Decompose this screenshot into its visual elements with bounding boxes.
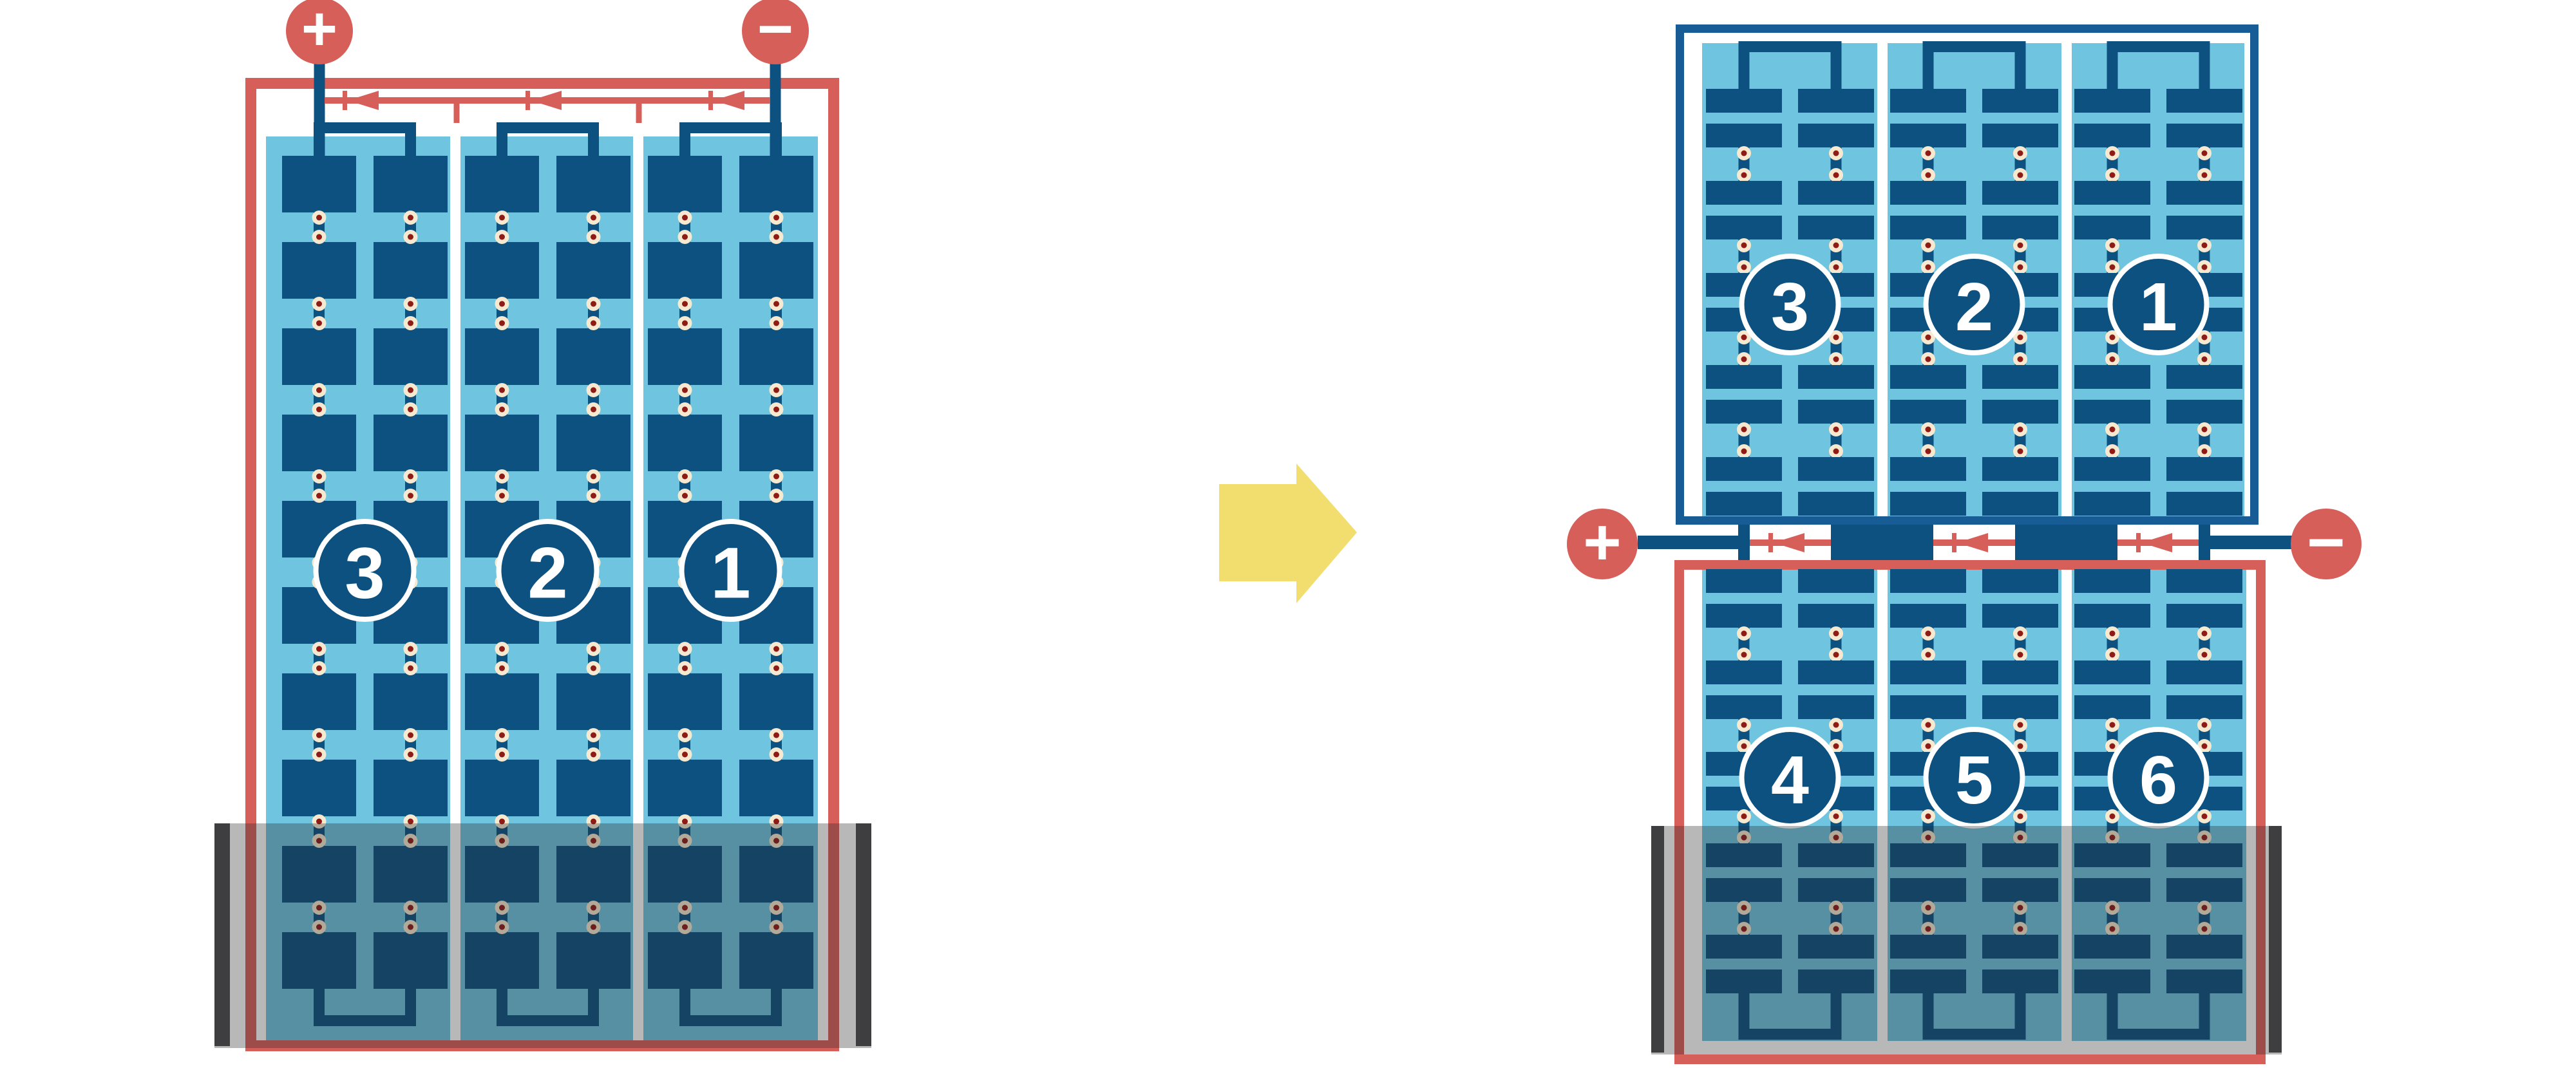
left-solder-dot-core [408,215,413,221]
left-solder-dot-core [591,234,596,240]
left-solder-dot-core [316,234,322,240]
right-bottom-panel-solder-dot-core [2018,814,2023,820]
left-solder-dot-core [408,666,413,671]
right-top-panel-solder-dot-core [1833,335,1839,341]
right-bottom-panel-half-cell [1982,569,2058,593]
right-top-panel-half-cell [1890,457,1966,481]
left-solder-dot-core [591,301,596,307]
left-minus-terminal-label: − [757,0,793,64]
right-bottom-panel-half-cell [2074,695,2150,719]
right-top-panel-solder-dot-core [1833,243,1839,248]
left-solder-dot-core [773,321,779,326]
left-bypass-diode-bar [526,91,530,110]
left-solder-dot-core [499,234,505,240]
left-solder-dot-core [408,733,413,738]
right-top-panel-top-staple-bar [1739,41,1842,52]
right-bottom-panel-solder-dot-core [1741,814,1747,820]
right-top-panel-substring-label: 2 [1955,269,1993,345]
right-bottom-panel-substring-label: 6 [2139,742,2177,818]
right-top-panel-solder-dot-core [2110,243,2116,248]
right-bottom-panel-half-cell [1890,660,1966,684]
left-bypass-diode-triangle [714,91,744,110]
right-top-panel-half-cell [1706,181,1782,205]
left-solder-dot-core [591,666,596,671]
right-top-panel-solder-dot-core [1741,265,1747,270]
right-bottom-panel-half-cell [2074,604,2150,628]
left-solder-dot-core [408,321,413,326]
right-bottom-panel-half-cell [1890,695,1966,719]
right-top-panel-half-cell [1982,492,2058,516]
left-cell [282,760,356,816]
left-cell [739,673,813,730]
left-solder-dot-core [682,752,688,758]
right-top-panel-solder-dot-core [1833,151,1839,156]
right-top-panel-solder-dot-core [1926,243,1931,248]
right-bottom-panel-half-cell [1798,569,1874,593]
right-bypass-diode-bar [1768,533,1773,552]
right-top-panel-top-staple-leg [1923,41,1934,89]
right-bottom-panel-half-cell [1798,604,1874,628]
right-bottom-panel-half-cell [1706,660,1782,684]
right-top-panel-solder-dot-core [2110,427,2116,433]
right-top-panel-half-cell [1798,457,1874,481]
left-solder-dot-core [499,407,505,413]
screenshot-root: 321+−321456+− [0,0,2576,1068]
right-bottom-panel-solder-dot-core [2202,631,2208,637]
right-bottom-panel-solder-dot-core [2018,722,2023,728]
right-top-panel-half-cell [2166,457,2242,481]
left-solder-dot-core [499,215,505,221]
left-shade-post [856,823,871,1046]
right-top-panel-substring-separator [2061,43,2072,516]
right-top-panel-solder-dot-core [2202,173,2208,178]
left-cell [739,415,813,471]
left-cell [648,760,722,816]
left-solder-dot-core [408,301,413,307]
right-top-panel-half-cell [2074,216,2150,239]
left-solder-dot-core [316,407,322,413]
left-cell [465,673,539,730]
left-solder-dot-core [316,321,322,326]
left-solder-dot-core [316,215,322,221]
left-cell [648,328,722,385]
right-bypass-diode-triangle [1957,533,1988,552]
right-top-panel-half-cell [1982,457,2058,481]
left-solder-dot-core [499,752,505,758]
right-bottom-panel-solder-dot-core [2110,744,2116,749]
left-cell [282,156,356,212]
right-top-panel-solder-dot-core [2110,449,2116,454]
right-top-panel-half-cell [1706,216,1782,239]
right-top-panel-half-cell [1890,365,1966,389]
right-top-panel-solder-dot-core [2018,449,2023,454]
right-top-panel-half-cell [1798,216,1874,239]
left-cell [282,415,356,471]
right-bottom-panel-half-cell [1706,695,1782,719]
right-top-panel-solder-dot-core [2018,265,2023,270]
left-cell [556,673,630,730]
left-cell [465,242,539,299]
right-bottom-panel-solder-dot-core [2018,631,2023,637]
right-bottom-panel-solder-dot-core [1833,652,1839,658]
left-diode-bus-tap [454,104,460,123]
right-bottom-panel-solder-dot-core [1833,722,1839,728]
left-cell [739,760,813,816]
right-junction-tab [2199,521,2210,561]
right-top-panel-half-cell [2074,365,2150,389]
right-bottom-panel-solder-dot-core [1833,814,1839,820]
left-bypass-diode-triangle [348,91,379,110]
right-bottom-panel-half-cell [2166,695,2242,719]
left-plus-terminal-label: + [301,0,337,64]
left-solder-dot-core [682,234,688,240]
left-solder-dot-core [591,474,596,480]
right-terminal-bus [2210,536,2292,549]
left-solder-dot-core [499,388,505,393]
right-bottom-panel-substring-label: 5 [1955,742,1993,818]
left-solder-dot-core [682,733,688,738]
right-plus-terminal-label: + [1583,505,1621,579]
right-top-panel-half-cell [1798,89,1874,113]
right-top-panel-half-cell [1890,492,1966,516]
right-top-panel-half-cell [2166,365,2242,389]
right-bottom-panel-half-cell [1890,604,1966,628]
right-bottom-panel-solder-dot-core [1833,631,1839,637]
right-terminal-bus [1638,536,1739,549]
left-solder-dot-core [773,666,779,671]
right-bottom-panel-half-cell [1798,660,1874,684]
left-top-staple-leg [497,122,507,156]
right-shade-post [2269,826,2282,1053]
left-solder-dot-core [408,646,413,652]
left-solder-dot-core [682,474,688,480]
left-solder-dot-core [591,493,596,499]
right-top-panel-top-staple-leg [2015,41,2026,89]
right-top-panel-solder-dot-core [1926,357,1931,362]
left-cell [648,673,722,730]
right-top-panel-solder-dot-core [1833,357,1839,362]
right-bottom-panel-solder-dot-core [2110,631,2116,637]
left-substring-label: 3 [345,533,384,614]
left-solder-dot-core [591,752,596,758]
right-top-panel-solder-dot-core [1741,357,1747,362]
right-top-panel-solder-dot-core [2202,243,2208,248]
right-top-panel-half-cell [1706,457,1782,481]
left-plus-stem [314,61,325,156]
left-solder-dot-core [499,733,505,738]
right-top-panel-solder-dot-core [1926,151,1931,156]
left-cell [556,156,630,212]
right-junction-tab [1831,521,1933,561]
right-top-panel-half-cell [1706,492,1782,516]
left-solder-dot-core [591,321,596,326]
right-top-panel-solder-dot-core [2018,427,2023,433]
right-bypass-diode-triangle [2141,533,2172,552]
left-solder-dot-core [773,493,779,499]
left-solder-dot-core [316,646,322,652]
right-top-panel-half-cell [2166,89,2242,113]
left-solder-dot-core [682,215,688,221]
right-bottom-panel-solder-dot-core [1926,814,1931,820]
right-top-panel-half-cell [1982,365,2058,389]
right-top-panel-solder-dot-core [1833,427,1839,433]
left-cell [739,242,813,299]
right-shade-overlay [1651,826,2282,1054]
left-cell [465,760,539,816]
right-bottom-panel-solder-dot-core [2202,744,2208,749]
left-top-staple-bar [314,122,416,133]
right-top-panel-top-staple-leg [2107,41,2118,89]
left-solder-dot-core [682,493,688,499]
left-solder-dot-core [682,388,688,393]
right-top-panel-half-cell [2166,400,2242,424]
right-top-panel-top-staple-bar [2107,41,2210,52]
left-solder-dot-core [316,301,322,307]
right-bottom-panel-half-cell [1982,604,2058,628]
right-top-panel-half-cell [1890,216,1966,239]
left-solder-dot-core [773,474,779,480]
left-solder-dot-core [773,215,779,221]
right-top-panel-solder-dot-core [2018,151,2023,156]
right-top-panel-half-cell [2166,124,2242,147]
left-diode-bus-tap [636,104,642,123]
right-top-panel-solder-dot-core [2018,173,2023,178]
left-solder-dot-core [591,407,596,413]
right-top-panel-half-cell [2074,89,2150,113]
left-solder-dot-core [499,646,505,652]
right-top-panel-solder-dot-core [1926,427,1931,433]
right-bottom-panel-solder-dot-core [2018,744,2023,749]
right-top-panel-half-cell [1890,181,1966,205]
right-top-panel-substring-label: 3 [1771,269,1809,345]
right-top-panel-half-cell [1706,365,1782,389]
right-top-panel-solder-dot-core [1926,173,1931,178]
left-cell [648,242,722,299]
left-bypass-diode-bar [343,91,347,110]
right-top-panel-solder-dot-core [2110,173,2116,178]
right-top-panel-solder-dot-core [1741,243,1747,248]
left-cell [556,242,630,299]
right-top-panel-solder-dot-core [2110,151,2116,156]
left-top-staple-bar [497,122,599,133]
right-top-panel-half-cell [2074,457,2150,481]
left-solder-dot-core [682,407,688,413]
right-top-panel-solder-dot-core [2110,335,2116,341]
left-substring-label: 2 [527,533,567,614]
right-bottom-panel-solder-dot-core [2110,652,2116,658]
left-solder-dot-core [591,646,596,652]
right-bottom-panel-half-cell [2074,660,2150,684]
right-bottom-panel-solder-dot-core [1833,744,1839,749]
right-top-panel-solder-dot-core [1833,265,1839,270]
left-top-staple-bar [679,122,782,133]
right-bypass-diode-bar [1952,533,1956,552]
right-top-panel-solder-dot-core [1741,449,1747,454]
left-cell [465,328,539,385]
left-shade-post [214,823,230,1046]
right-top-panel-solder-dot-core [1741,173,1747,178]
right-bypass-diode-bar [2136,533,2141,552]
left-cell [374,415,448,471]
right-top-panel-half-cell [1890,124,1966,147]
left-cell [374,328,448,385]
left-solder-dot-core [773,733,779,738]
right-top-panel-solder-dot-core [2018,243,2023,248]
left-cell [374,156,448,212]
solar-module-comparison-diagram: 321+−321456+− [0,0,2576,1068]
left-cell [465,415,539,471]
left-solder-dot-core [682,301,688,307]
right-top-panel-half-cell [1798,492,1874,516]
right-shade-post [1651,826,1664,1053]
right-bottom-panel-half-cell [2074,569,2150,593]
right-top-panel-half-cell [1798,400,1874,424]
right-bottom-panel-solder-dot-core [2202,722,2208,728]
left-cell [374,760,448,816]
right-top-panel-half-cell [1890,400,1966,424]
left-solder-dot-core [591,215,596,221]
right-top-panel-half-cell [2074,124,2150,147]
left-bypass-diode-triangle [531,91,562,110]
right-bottom-panel-solder-dot-core [1926,652,1931,658]
right-top-panel-half-cell [2166,492,2242,516]
right-bypass-diode-triangle [1774,533,1804,552]
right-junction-tab [2015,521,2117,561]
left-cell [739,156,813,212]
right-top-panel-half-cell [1706,89,1782,113]
right-bottom-panel-half-cell [1890,569,1966,593]
left-solder-dot-core [316,474,322,480]
right-top-panel-half-cell [1706,400,1782,424]
left-cell [282,242,356,299]
left-top-staple-leg [588,122,599,156]
transition-arrow-icon [1219,464,1357,603]
left-solder-dot-core [773,407,779,413]
left-solder-dot-core [316,752,322,758]
right-top-panel-substring-separator [1877,43,1888,516]
left-solder-dot-core [591,733,596,738]
left-cell [374,242,448,299]
left-solder-dot-core [682,321,688,326]
right-top-panel-solder-dot-core [2018,357,2023,362]
right-top-panel-solder-dot-core [2202,427,2208,433]
right-bottom-panel-solder-dot-core [2018,652,2023,658]
right-top-panel-half-cell [1890,89,1966,113]
right-top-panel-half-cell [2166,181,2242,205]
right-top-panel-solder-dot-core [1926,335,1931,341]
right-top-panel-half-cell [2074,400,2150,424]
left-solder-dot-core [408,388,413,393]
right-bottom-panel-substring-label: 4 [1771,742,1809,818]
right-bottom-panel-solder-dot-core [1926,631,1931,637]
right-top-panel-top-staple-bar [1923,41,2026,52]
right-bottom-panel-solder-dot-core [1926,722,1931,728]
right-bottom-panel-half-cell [1706,569,1782,593]
left-solder-dot-core [591,388,596,393]
right-top-panel-half-cell [1982,181,2058,205]
right-bottom-panel-half-cell [2166,569,2242,593]
right-bottom-panel-solder-dot-core [1741,722,1747,728]
right-top-panel-half-cell [1982,89,2058,113]
left-substring-label: 1 [710,533,750,614]
right-top-panel-top-staple-leg [2199,41,2210,89]
left-solder-dot-core [773,646,779,652]
left-solder-dot-core [682,666,688,671]
right-junction-tab [1738,521,1750,561]
left-solder-dot-core [499,474,505,480]
right-top-panel-half-cell [1798,124,1874,147]
right-top-panel-top-staple-leg [1831,41,1842,89]
right-top-panel-half-cell [1982,124,2058,147]
right-top-panel-solder-dot-core [2202,449,2208,454]
left-solder-dot-core [499,321,505,326]
left-solder-dot-core [408,474,413,480]
right-bottom-panel-half-cell [2166,660,2242,684]
right-minus-terminal-label: − [2307,505,2345,579]
right-bottom-panel-half-cell [1982,660,2058,684]
right-bottom-panel-half-cell [1982,695,2058,719]
left-solder-dot-core [408,234,413,240]
right-bottom-panel-half-cell [2166,604,2242,628]
right-top-panel-solder-dot-core [2202,151,2208,156]
right-top-panel-solder-dot-core [1926,265,1931,270]
left-solder-dot-core [316,388,322,393]
right-top-panel-half-cell [2074,181,2150,205]
left-minus-stem [770,61,781,156]
left-solder-dot-core [499,493,505,499]
left-solder-dot-core [773,752,779,758]
left-solder-dot-core [408,493,413,499]
left-top-staple-leg [405,122,416,156]
right-top-panel-solder-dot-core [2110,357,2116,362]
right-top-panel-solder-dot-core [1741,151,1747,156]
right-top-panel-top-staple-leg [1739,41,1750,89]
left-cell [465,156,539,212]
right-bottom-panel-solder-dot-core [1926,744,1931,749]
left-cell [739,328,813,385]
right-bottom-panel-solder-dot-core [2110,814,2116,820]
right-bottom-panel-half-cell [1706,604,1782,628]
left-shade-overlay [214,823,871,1048]
right-bottom-panel-solder-dot-core [2110,722,2116,728]
right-top-panel-half-cell [1798,181,1874,205]
right-top-panel-solder-dot-core [1833,449,1839,454]
right-bottom-panel-solder-dot-core [2202,814,2208,820]
left-solder-dot-core [773,301,779,307]
left-top-staple-leg [679,122,690,156]
right-top-panel-solder-dot-core [1833,173,1839,178]
right-top-panel-half-cell [1798,365,1874,389]
right-top-panel-solder-dot-core [2202,357,2208,362]
left-cell [282,328,356,385]
right-top-panel-half-cell [2166,216,2242,239]
right-top-panel-solder-dot-core [1926,449,1931,454]
left-cell [374,673,448,730]
left-cell [556,328,630,385]
left-solder-dot-core [408,407,413,413]
left-cell [556,415,630,471]
right-bottom-panel-solder-dot-core [1741,631,1747,637]
left-solder-dot-core [773,234,779,240]
right-bottom-panel-solder-dot-core [1741,744,1747,749]
left-solder-dot-core [499,301,505,307]
right-top-panel-half-cell [1982,216,2058,239]
left-bypass-diode-bar [708,91,713,110]
left-solder-dot-core [773,388,779,393]
left-solder-dot-core [316,733,322,738]
right-top-panel-solder-dot-core [1741,427,1747,433]
left-cell [282,673,356,730]
